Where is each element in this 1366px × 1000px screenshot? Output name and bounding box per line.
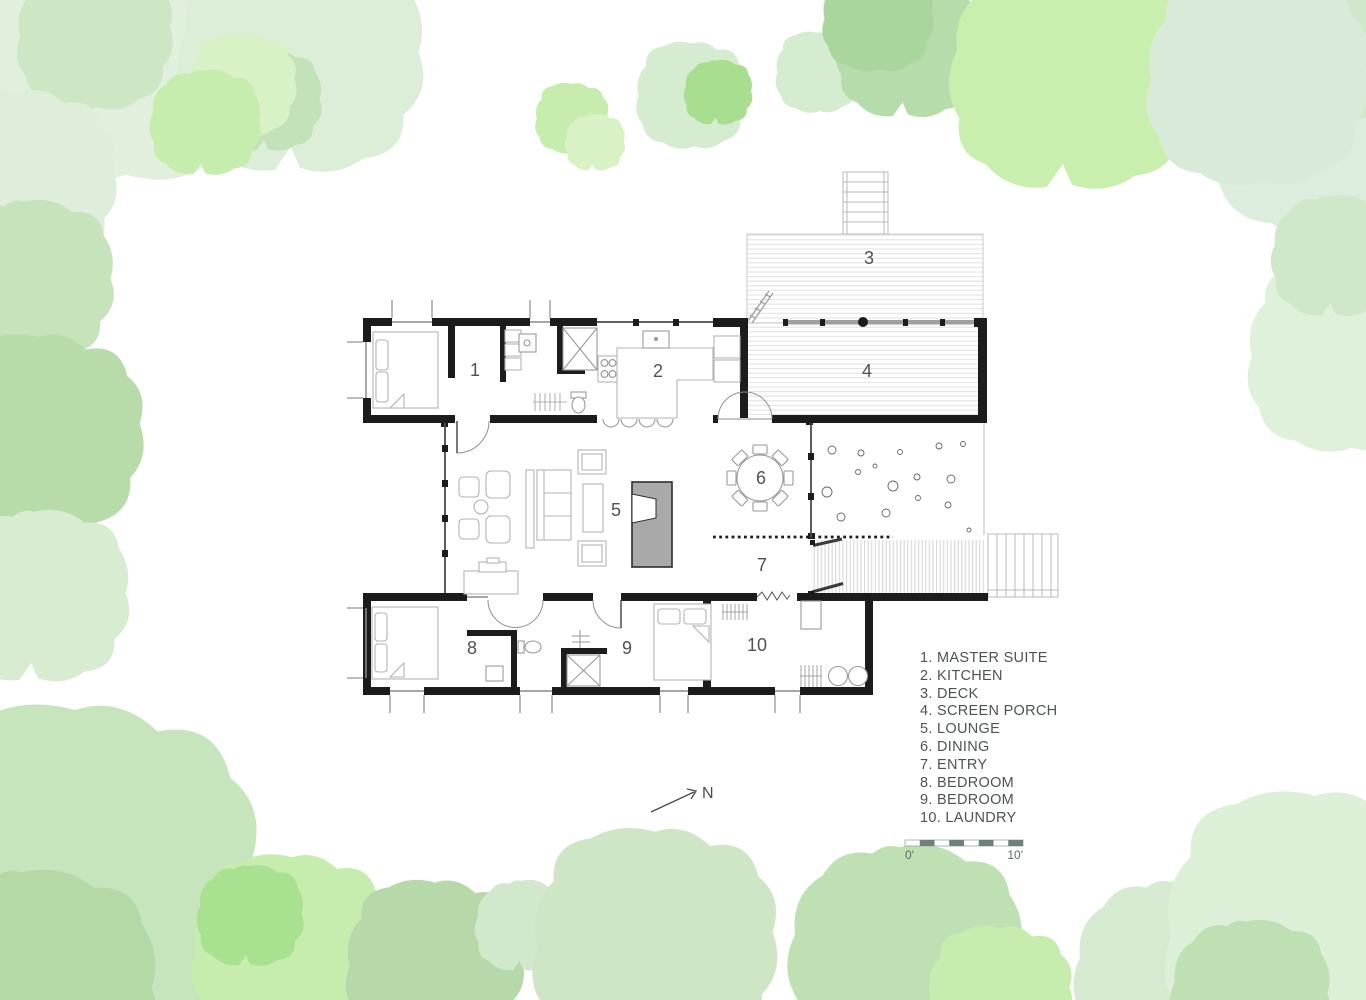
fireplace bbox=[632, 482, 672, 567]
master-bed bbox=[373, 332, 438, 408]
legend-item-deck: 3. DECK bbox=[920, 686, 1057, 704]
room-label-kitchen: 2 bbox=[653, 361, 663, 381]
floor-plan-page: 1 2 3 4 5 6 7 8 9 10 N 0' 10' 1. MASTER … bbox=[0, 0, 1366, 1000]
deck-stairs bbox=[843, 172, 888, 234]
room-label-deck: 3 bbox=[864, 248, 874, 268]
room-label-lounge: 5 bbox=[611, 500, 621, 520]
bedroom9-bed bbox=[654, 604, 711, 680]
floor-plan-drawing: 1 2 3 4 5 6 7 8 9 10 N 0' 10' bbox=[0, 0, 1366, 1000]
floor-fills bbox=[371, 172, 1058, 687]
room-label-master-suite: 1 bbox=[470, 360, 480, 380]
legend-item-dining: 6. DINING bbox=[920, 739, 1057, 757]
entry-stairs bbox=[988, 534, 1058, 597]
north-label: N bbox=[702, 785, 714, 802]
room-label-screen-porch: 4 bbox=[862, 361, 872, 381]
legend-item-entry: 7. ENTRY bbox=[920, 757, 1057, 775]
room-label-bedroom9: 9 bbox=[622, 638, 632, 658]
kitchen-sink bbox=[643, 331, 669, 348]
legend-item-laundry: 10. LAUNDRY bbox=[920, 810, 1057, 828]
legend-item-kitchen: 2. KITCHEN bbox=[920, 668, 1057, 686]
room-label-entry: 7 bbox=[757, 555, 767, 575]
legend-item-bedroom9: 9. BEDROOM bbox=[920, 792, 1057, 810]
scale-start-label: 0' bbox=[905, 848, 914, 862]
wall-break-symbol bbox=[757, 592, 790, 600]
legend-item-lounge: 5. LOUNGE bbox=[920, 721, 1057, 739]
north-arrow: N bbox=[651, 785, 714, 812]
legend-item-master-suite: 1. MASTER SUITE bbox=[920, 650, 1057, 668]
bedroom8-bed bbox=[372, 607, 438, 679]
legend: 1. MASTER SUITE 2. KITCHEN 3. DECK 4. SC… bbox=[920, 650, 1057, 828]
room-label-bedroom8: 8 bbox=[467, 638, 477, 658]
scale-end-label: 10' bbox=[1007, 848, 1023, 862]
room-label-dining: 6 bbox=[756, 468, 766, 488]
legend-item-bedroom8: 8. BEDROOM bbox=[920, 775, 1057, 793]
fridge-cabinets bbox=[714, 336, 740, 382]
legend-item-screen-porch: 4. SCREEN PORCH bbox=[920, 703, 1057, 721]
room-label-laundry: 10 bbox=[747, 635, 767, 655]
